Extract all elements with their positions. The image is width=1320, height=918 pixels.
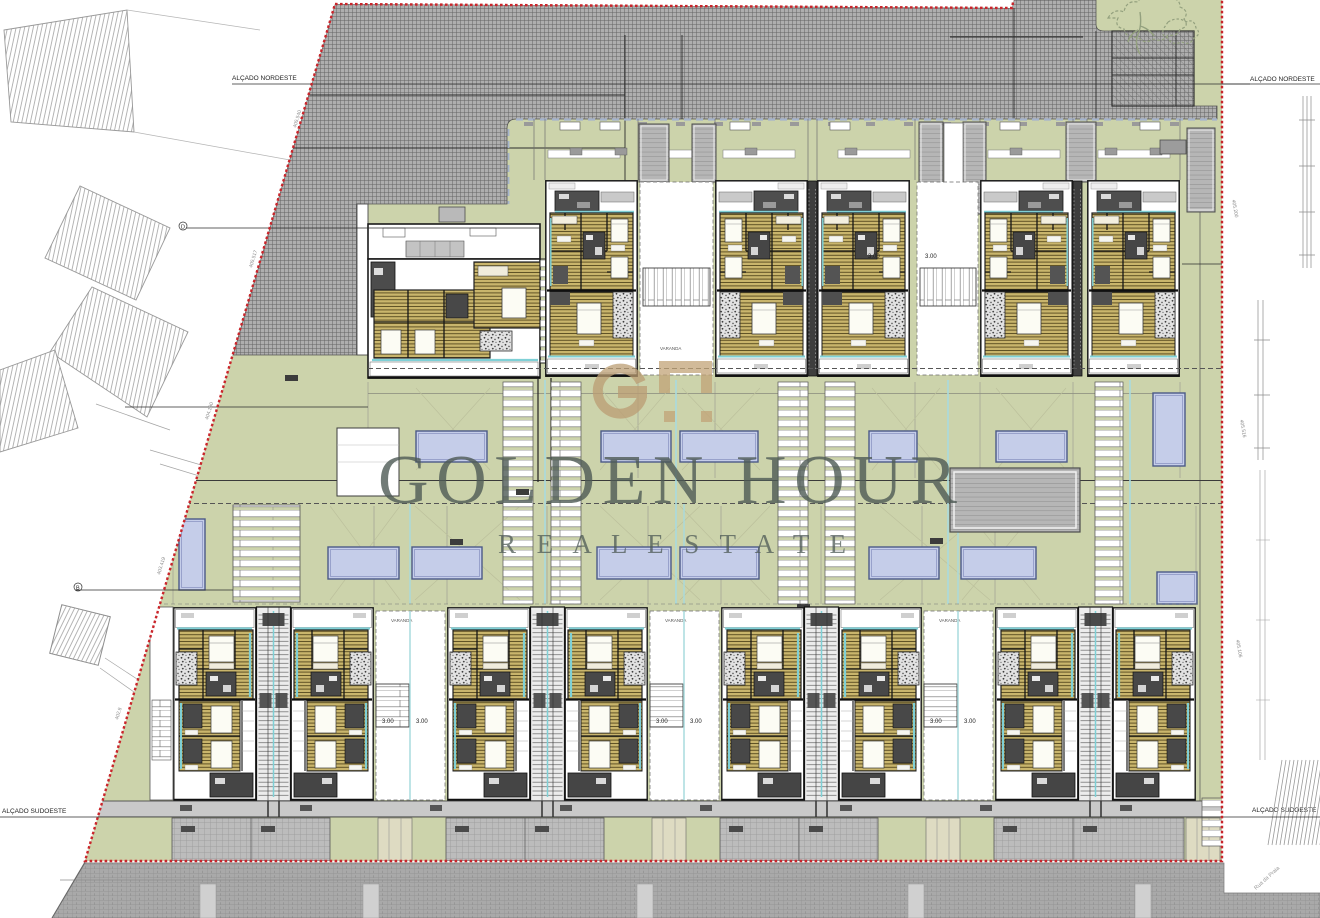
- svg-text:VARANDA: VARANDA: [391, 618, 412, 623]
- svg-text:ALÇADO SUDOESTE: ALÇADO SUDOESTE: [2, 808, 67, 815]
- svg-text:3.00: 3.00: [964, 719, 976, 725]
- svg-text:3.00: 3.00: [868, 254, 880, 260]
- svg-text:3.00: 3.00: [925, 254, 937, 260]
- svg-text:3.00: 3.00: [656, 719, 668, 725]
- svg-text:ALÇADO NORDESTE: ALÇADO NORDESTE: [232, 75, 297, 82]
- svg-text:VARANDA: VARANDA: [939, 618, 960, 623]
- svg-text:GOLDEN HOUR: GOLDEN HOUR: [378, 442, 957, 519]
- svg-text:R E A L E S T A T E: R E A L E S T A T E: [498, 529, 846, 559]
- svg-text:3.00: 3.00: [930, 719, 942, 725]
- svg-text:3.00: 3.00: [382, 719, 394, 725]
- svg-text:D: D: [181, 225, 185, 231]
- svg-text:VARANDA: VARANDA: [660, 346, 681, 351]
- svg-text:3.00: 3.00: [690, 719, 702, 725]
- svg-text:B: B: [76, 586, 80, 592]
- svg-text:3.00: 3.00: [416, 719, 428, 725]
- svg-text:VARANDA: VARANDA: [665, 618, 686, 623]
- svg-text:ALÇADO SUDOESTE: ALÇADO SUDOESTE: [1252, 807, 1317, 814]
- svg-text:ALÇADO NORDESTE: ALÇADO NORDESTE: [1250, 76, 1315, 83]
